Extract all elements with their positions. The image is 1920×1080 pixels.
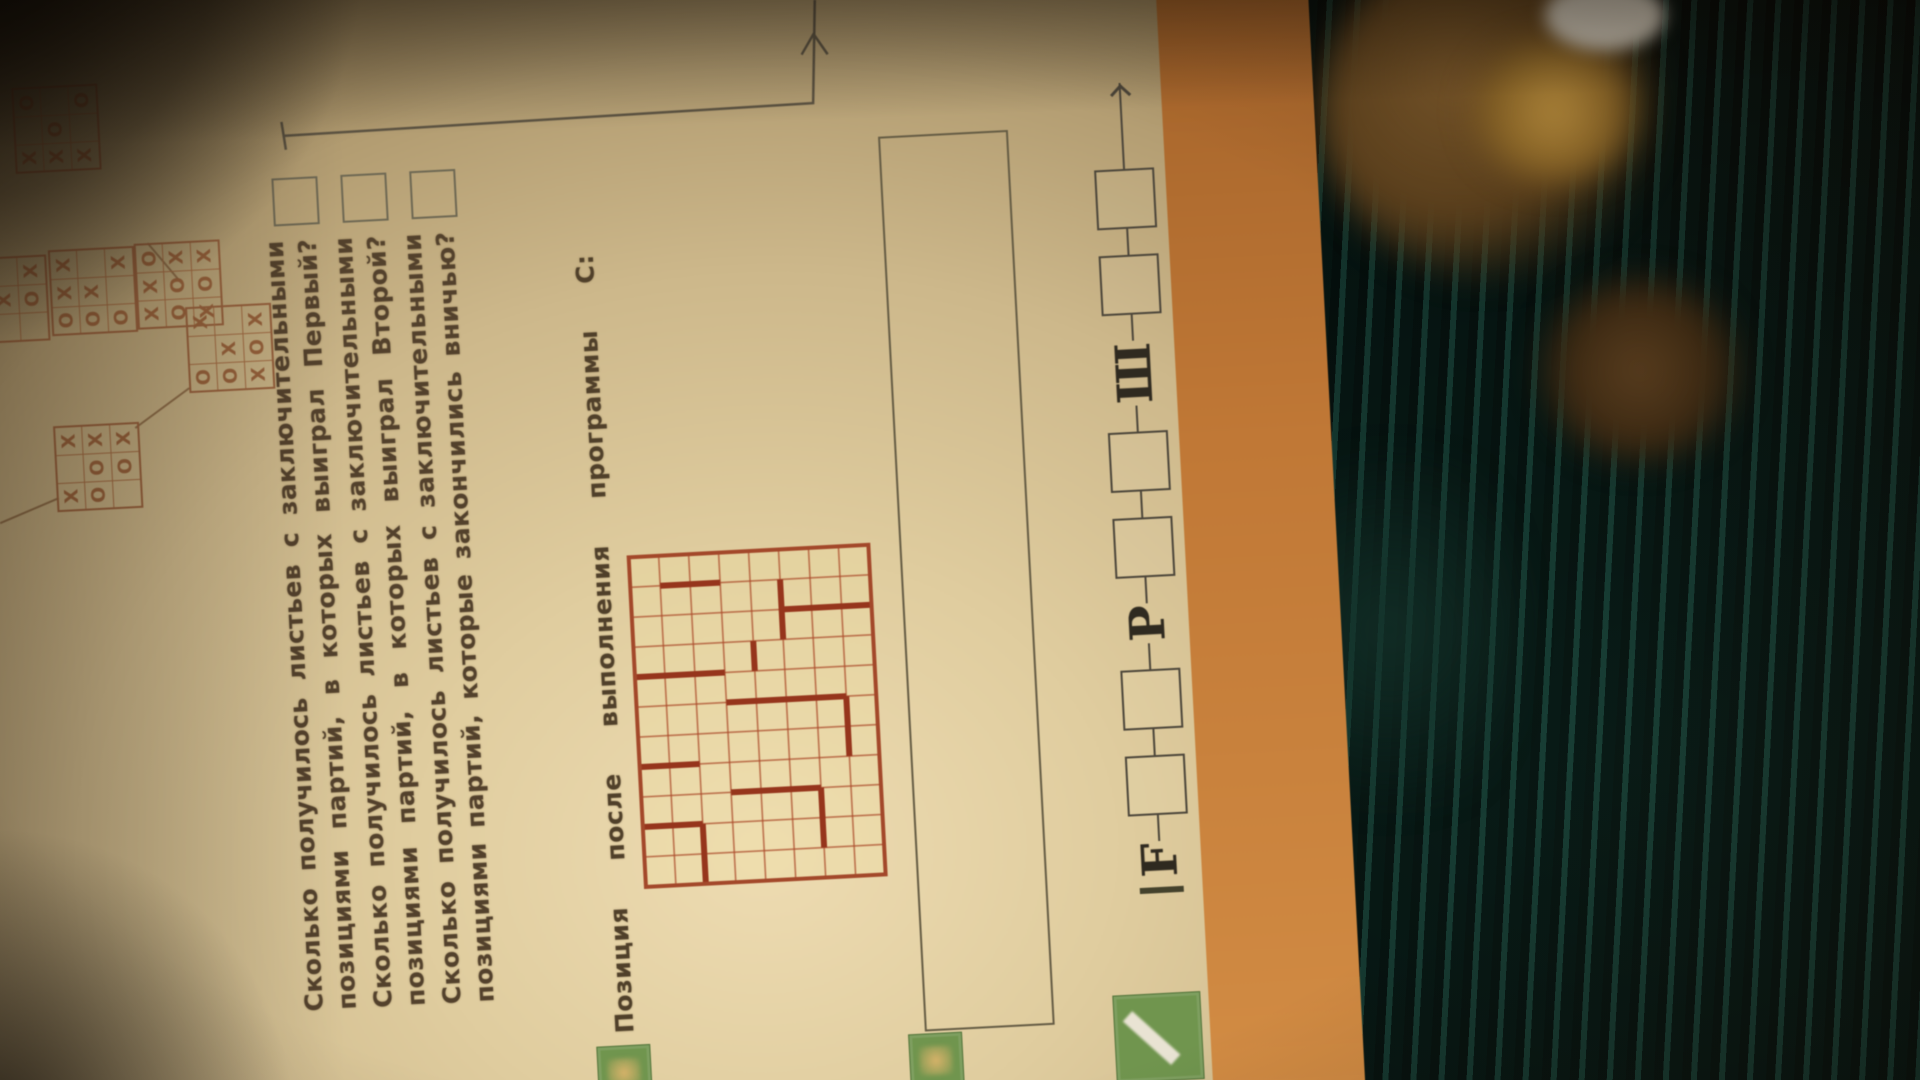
robot-field-grid [627, 543, 888, 889]
ttt-cell: X [137, 272, 166, 301]
chain-connector [1131, 315, 1134, 341]
ttt-cell: O [18, 284, 47, 313]
task-number-badge [908, 1032, 965, 1080]
ttt-cell: O [111, 451, 140, 480]
ttt-cell [15, 116, 44, 145]
chain-connector [1157, 815, 1160, 841]
chain-letter: Р [1123, 602, 1173, 645]
blanket-gold-spot [1470, 40, 1640, 180]
ttt-cell: O [42, 114, 71, 143]
tic-tac-toe-grid: OXXOXOX [48, 246, 138, 336]
answer-box-first-wins[interactable] [271, 176, 319, 226]
ttt-cell [0, 313, 21, 342]
chain-box[interactable] [1112, 516, 1175, 579]
task-number-badge [596, 1044, 653, 1080]
ttt-cell: O [85, 480, 114, 509]
ttt-cell: X [110, 424, 139, 453]
ttt-cell: X [163, 243, 192, 272]
ttt-cell: X [71, 140, 100, 169]
ttt-cell: X [139, 299, 168, 328]
answer-box-draws[interactable] [409, 169, 457, 219]
chain-connector [1140, 491, 1143, 517]
chain-connector [1152, 729, 1155, 755]
ttt-cell [189, 335, 218, 364]
ttt-cell: X [55, 427, 84, 456]
chain-box[interactable] [1125, 753, 1188, 816]
ttt-cell [57, 454, 86, 483]
ttt-cell: X [0, 285, 20, 314]
ttt-cell: X [190, 241, 219, 270]
ttt-cell: O [217, 361, 246, 390]
ttt-cell: X [44, 142, 73, 171]
chain-box[interactable] [1099, 253, 1162, 316]
ttt-cell: O [68, 86, 97, 115]
chain-connector [1144, 577, 1147, 603]
answer-box-second-wins[interactable] [340, 173, 388, 223]
ttt-cell: X [51, 278, 80, 307]
chain-connector [1135, 405, 1138, 431]
chain-box[interactable] [1120, 668, 1183, 731]
ttt-cell: O [190, 362, 219, 391]
ttt-cell: X [50, 251, 79, 280]
ttt-cell [106, 275, 135, 304]
tic-tac-toe-grid: XXOOXOX [53, 422, 143, 512]
chain-connector [1148, 643, 1151, 669]
ttt-cell: O [13, 89, 42, 118]
ttt-cell: X [58, 481, 87, 510]
questions-list: Сколько получилось листьев с заключитель… [254, 163, 505, 1013]
ttt-cell: X [82, 425, 111, 454]
chain-box[interactable] [1108, 430, 1171, 493]
chain-start-letter: F [1135, 840, 1185, 881]
chain-letter: Ш [1109, 339, 1160, 406]
ttt-cell: X [17, 257, 46, 286]
ttt-cell [77, 249, 106, 278]
ttt-cell: X [16, 143, 45, 172]
ttt-cell: O [84, 453, 113, 482]
chain-end-arrow-icon [1104, 78, 1137, 143]
ttt-cell: O [80, 304, 109, 333]
ttt-cell: X [105, 248, 134, 277]
chain-box[interactable] [1094, 167, 1157, 230]
ttt-cell: X [79, 277, 108, 306]
workbook-page: XOXOXO XOOXOX OXXOXOX XXOOOXXOX XXOOXOX … [0, 0, 1365, 1080]
ttt-cell [41, 87, 70, 116]
write-task-badge pencil-icon [1112, 991, 1204, 1080]
ttt-cell: O [107, 303, 136, 332]
ttt-cell: X [187, 308, 216, 337]
chain-connector [1126, 229, 1129, 255]
ttt-cell: O [192, 269, 221, 298]
photo-of-workbook-page: XOXOXO XOOXOX OXXOXOX XXOOOXXOX XXOOXOX … [0, 0, 1920, 1080]
ttt-cell: X [216, 334, 245, 363]
ttt-cell [113, 479, 142, 508]
blanket-brown-spot [1540, 280, 1740, 460]
ttt-cell: O [164, 270, 193, 299]
chain-connector [1122, 143, 1125, 169]
ttt-cell [69, 113, 98, 142]
ttt-cell [214, 306, 243, 335]
ttt-cell [0, 258, 18, 287]
ttt-cell: O [53, 305, 82, 334]
tic-tac-toe-grid: XOXOXO [11, 84, 101, 174]
ttt-cell: O [136, 244, 165, 273]
ttt-cell [20, 311, 49, 340]
tic-tac-toe-grid: XOOXOX [0, 254, 51, 344]
